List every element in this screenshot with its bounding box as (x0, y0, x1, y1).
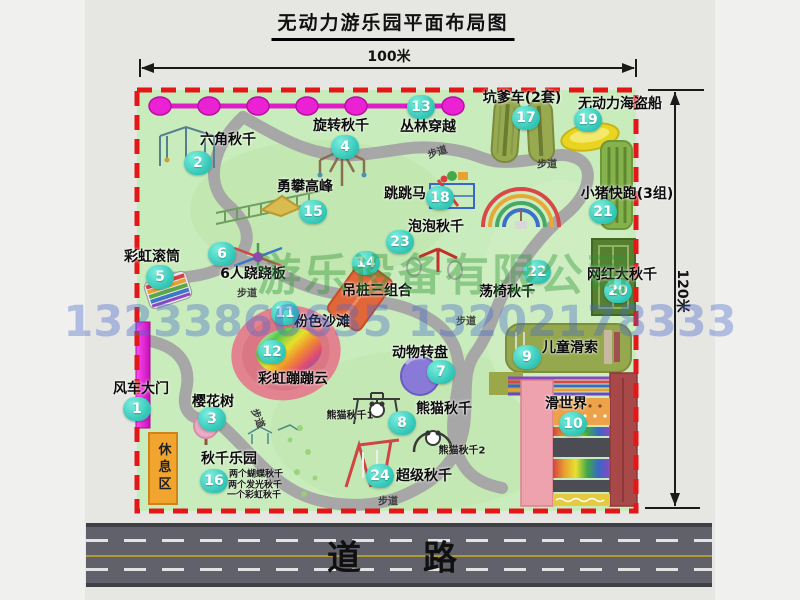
attraction-badge: 13 (407, 95, 435, 119)
attraction-label: 坑爹车(2套) (483, 87, 562, 107)
attraction-badge: 19 (574, 108, 602, 132)
attraction-badge: 24 (366, 464, 394, 488)
attraction-label: 勇攀高峰 (277, 176, 333, 196)
attraction-badge: 16 (200, 469, 228, 493)
attraction-badge: 20 (604, 279, 632, 303)
attraction-label: 丛林穿越 (400, 116, 456, 136)
attraction-sub-label: 熊猫秋千2 (439, 442, 486, 457)
attraction-badge: 1 (123, 397, 151, 421)
attraction-label: 动物转盘 (392, 342, 448, 362)
attraction-label: 彩虹滚筒 (124, 246, 180, 266)
attraction-sub-label: 熊猫秋千1 (327, 407, 374, 422)
attraction-label: 六角秋千 (200, 129, 256, 149)
attraction-badge: 23 (386, 230, 414, 254)
attraction-label: 熊猫秋千 (416, 398, 472, 418)
attraction-label: 风车大门 (113, 378, 169, 398)
attraction-badge: 10 (559, 412, 587, 436)
attraction-badge: 8 (388, 411, 416, 435)
attraction-sub-label: 一个彩虹秋千 (227, 488, 281, 501)
attraction-label: 儿童滑索 (542, 337, 598, 357)
trail-label: 步道 (378, 493, 398, 508)
attraction-label: 荡椅秋千 (479, 281, 535, 301)
attraction-label: 泡泡秋千 (408, 216, 464, 236)
attraction-badge: 6 (208, 242, 236, 266)
attraction-badge: 4 (331, 135, 359, 159)
attraction-badge: 18 (426, 186, 454, 210)
attraction-badge: 15 (299, 200, 327, 224)
attraction-badge: 9 (513, 345, 541, 369)
attraction-badge: 12 (258, 340, 286, 364)
trail-label: 步道 (237, 285, 257, 300)
attraction-badge: 7 (427, 360, 455, 384)
attraction-label: 小猪快跑(3组) (581, 183, 674, 203)
attraction-label: 滑世界 (545, 393, 587, 413)
attraction-label: 旋转秋千 (313, 115, 369, 135)
attraction-badge: 21 (589, 200, 617, 224)
attraction-label: 6人跷跷板 (220, 263, 286, 283)
trail-label: 步道 (456, 313, 476, 328)
attraction-badge: 3 (198, 407, 226, 431)
attraction-badge: 14 (352, 251, 380, 275)
attraction-label: 粉色沙滩 (294, 311, 350, 331)
attraction-label: 秋千乐园 (201, 448, 257, 468)
attraction-badge: 17 (512, 106, 540, 130)
attraction-label: 跳跳马 (384, 183, 426, 203)
attraction-label: 彩虹蹦蹦云 (258, 368, 328, 388)
screenshot-stage: 无动力游乐园平面布局图 100米 120米 休息区 风车大门1六角秋千2樱花树3… (0, 0, 800, 600)
attraction-label: 吊桩三组合 (342, 280, 412, 300)
attraction-label: 超级秋千 (396, 465, 452, 485)
attraction-badge: 5 (146, 265, 174, 289)
attraction-badge: 11 (271, 301, 299, 325)
attraction-markers-layer: 风车大门1六角秋千2樱花树3旋转秋千4彩虹滚筒56人跷跷板6动物转盘7熊猫秋千8… (0, 0, 800, 600)
attraction-badge: 2 (184, 151, 212, 175)
trail-label: 步道 (248, 406, 269, 430)
trail-label: 步道 (537, 156, 557, 171)
attraction-badge: 22 (523, 260, 551, 284)
trail-label: 步道 (425, 141, 449, 161)
